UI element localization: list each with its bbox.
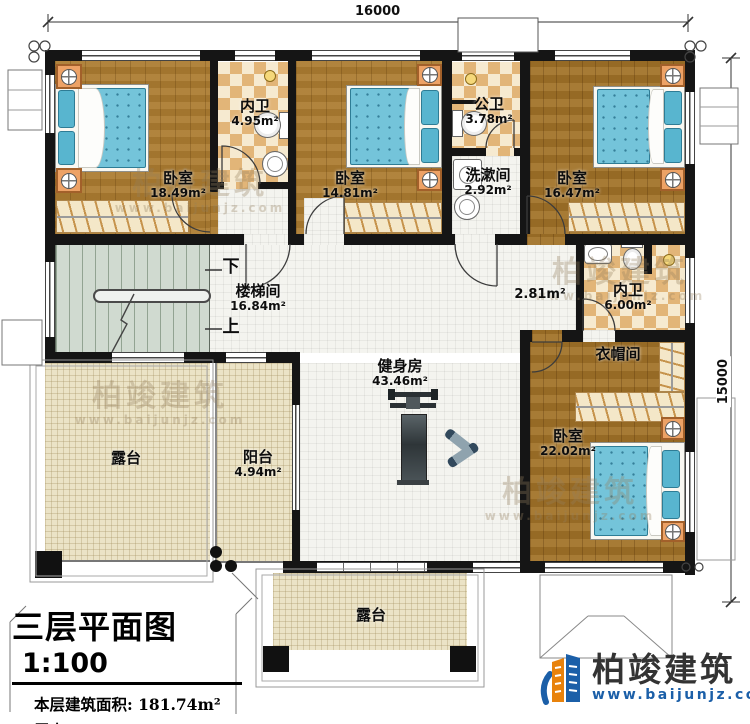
- light-icon: [465, 73, 477, 85]
- window: [473, 562, 520, 573]
- column-post: [263, 646, 289, 672]
- company-name: 柏竣建筑: [592, 653, 750, 686]
- door-opening: [210, 192, 218, 234]
- window: [226, 352, 266, 363]
- nightstand-icon: [660, 168, 685, 191]
- company-logo: 柏竣建筑 www.baijunjz.com: [540, 652, 750, 706]
- room-label-terrace-left: 露台: [111, 450, 141, 467]
- title-block: 三层平面图 1:100 本层建筑面积: 181.74m² 层高: 3.3m: [12, 602, 242, 724]
- pillow-icon: [662, 491, 680, 519]
- pillow-icon: [662, 450, 680, 488]
- floor-neiwei1-entry: [218, 189, 292, 234]
- window: [112, 352, 184, 363]
- bed-mattress: [597, 89, 650, 164]
- sink-icon: [584, 243, 612, 264]
- nightstand-icon: [417, 169, 442, 191]
- pillow-icon: [58, 131, 75, 165]
- window: [45, 75, 55, 133]
- lamp-icon: [61, 173, 77, 189]
- door-opening: [244, 234, 288, 245]
- wall: [258, 182, 292, 189]
- window: [685, 258, 695, 323]
- lamp-icon: [422, 172, 438, 188]
- window: [292, 405, 300, 510]
- door-opening: [304, 234, 344, 245]
- window: [685, 92, 695, 164]
- window: [555, 50, 630, 61]
- stair-handrail: [93, 289, 211, 303]
- bed-mattress: [594, 446, 648, 536]
- room-label-gongwei: 公卫 3.78m²: [465, 96, 512, 126]
- wall: [45, 234, 695, 245]
- pillow-icon: [421, 90, 439, 125]
- dimension-top: 16000: [352, 4, 403, 19]
- window: [235, 50, 275, 61]
- sliding-door: [317, 562, 427, 572]
- bed-sheet: [648, 89, 664, 164]
- room-label-gym: 健身房 43.46m²: [372, 358, 428, 388]
- wall: [576, 234, 584, 334]
- wardrobe-icon: [568, 202, 685, 232]
- pillow-icon: [664, 128, 682, 163]
- room-label-corridor: 2.81m²: [514, 288, 565, 302]
- nightstand-icon: [661, 417, 685, 440]
- wall: [514, 148, 520, 156]
- room-label-neiwei2: 内卫 6.00m²: [604, 282, 651, 312]
- sink-icon: [262, 151, 288, 177]
- floor-height-line: 层高: 3.3m: [34, 719, 242, 724]
- nightstand-icon: [417, 64, 442, 86]
- room-label-cloakroom: 衣帽间: [595, 346, 640, 363]
- wall: [442, 60, 452, 235]
- title-rule: [12, 682, 242, 685]
- column-post: [450, 646, 476, 672]
- stair-down-label: 下: [223, 258, 240, 277]
- room-label-bedroom1: 卧室 18.49m²: [150, 170, 206, 200]
- room-label-bedroom2: 卧室 14.81m²: [322, 170, 378, 200]
- lamp-icon: [665, 524, 681, 540]
- building-area-line: 本层建筑面积: 181.74m²: [34, 693, 242, 715]
- company-logo-icon: [540, 652, 584, 706]
- wall: [520, 330, 530, 573]
- stair-up-label: 上: [223, 318, 240, 337]
- door-opening: [455, 234, 495, 245]
- light-icon: [663, 254, 675, 266]
- nightstand-icon: [56, 64, 82, 89]
- pillow-icon: [421, 128, 439, 163]
- lamp-icon: [665, 172, 681, 188]
- wardrobe-icon: [344, 202, 442, 233]
- lamp-icon: [61, 69, 77, 85]
- light-icon: [264, 70, 276, 82]
- window: [545, 562, 663, 573]
- door-opening: [224, 182, 258, 189]
- bench-press-icon: [388, 388, 440, 486]
- floor-bedroom2-entry: [304, 198, 344, 234]
- toilet-icon: [623, 248, 642, 270]
- plan-scale: 1:100: [22, 648, 108, 679]
- room-label-bedroom4: 卧室 22.02m²: [540, 428, 596, 458]
- company-url: www.baijunjz.com: [592, 686, 750, 704]
- bed-sheet: [78, 88, 105, 168]
- room-label-xishujian: 洗漱间 2.92m²: [464, 167, 511, 197]
- room-label-balcony: 阳台 4.94m²: [234, 449, 281, 479]
- nightstand-icon: [56, 168, 82, 193]
- dimension-right: 15000: [716, 356, 731, 407]
- room-label-neiwei1: 内卫 4.95m²: [231, 98, 278, 128]
- room-label-terrace-bottom: 露台: [356, 607, 386, 624]
- bed-sheet: [646, 446, 662, 536]
- window: [462, 50, 514, 61]
- lamp-icon: [422, 67, 438, 83]
- nightstand-icon: [661, 521, 685, 542]
- window: [45, 262, 55, 337]
- wall: [288, 60, 296, 235]
- wardrobe-icon: [56, 200, 189, 233]
- wall: [520, 60, 530, 235]
- plan-title: 三层平面图: [12, 602, 177, 648]
- nightstand-icon: [660, 64, 685, 87]
- wardrobe-icon: [659, 342, 685, 392]
- door-opening: [583, 330, 615, 342]
- wall: [452, 148, 486, 156]
- pillow-icon: [664, 91, 682, 125]
- lamp-icon: [665, 421, 681, 437]
- sink-icon: [454, 194, 480, 220]
- door-opening: [532, 330, 562, 342]
- room-label-bedroom3: 卧室 16.47m²: [544, 170, 600, 200]
- column-post: [35, 551, 62, 578]
- wall: [644, 244, 652, 274]
- lamp-icon: [665, 68, 681, 84]
- pillow-icon: [58, 90, 75, 128]
- floor-plan: 柏竣建筑 www.baijunjz.com 柏竣建筑 www.baijunjz.…: [0, 0, 750, 724]
- window: [82, 50, 200, 61]
- bed-sheet: [404, 88, 420, 165]
- door-opening: [486, 148, 514, 156]
- window: [685, 452, 695, 532]
- door-opening: [527, 234, 565, 245]
- window: [312, 50, 420, 61]
- room-label-stairwell: 楼梯间 16.84m²: [230, 283, 286, 313]
